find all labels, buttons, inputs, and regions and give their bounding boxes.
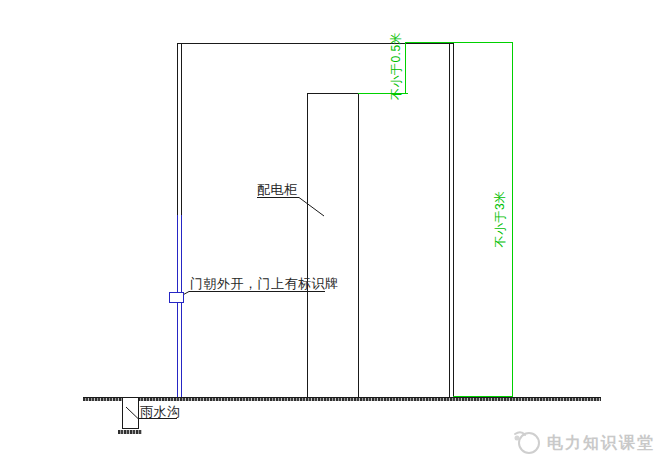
distribution-room-section-diagram: 配电柜 门朝外开，门上有标识牌 雨水沟 不小于0.5米 不小于3米 电力知识课堂 — [0, 0, 668, 471]
leader-lines — [0, 0, 668, 471]
door-handle — [169, 292, 184, 303]
